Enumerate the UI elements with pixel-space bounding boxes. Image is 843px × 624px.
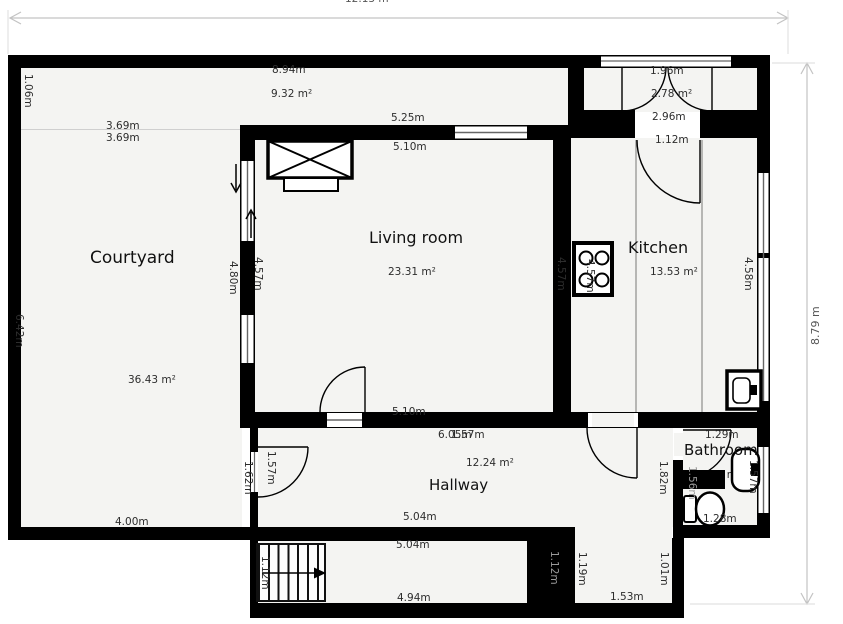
wall: [673, 460, 683, 528]
courtyard-right-dim: 4.80m: [227, 261, 238, 295]
wall: [568, 55, 584, 112]
corridor-top-dim: 5.04m: [396, 539, 430, 551]
wall: [240, 125, 570, 140]
bathroom-top-dim: 1.29m: [705, 429, 739, 441]
courtyard-top-dim-upper: 3.69m: [106, 120, 140, 132]
terrace-height-dim: 1.06m: [22, 74, 33, 108]
courtyard-hall-wall-dim: 1.62m: [242, 461, 253, 495]
kitchen-door-dim: 1.12m: [655, 134, 689, 146]
living-right-dim: 4.57m: [555, 257, 566, 291]
bathroom-right-dim: 1.57m: [747, 460, 758, 494]
wall: [250, 603, 684, 618]
hallway-door-dim: 1.57m: [265, 451, 276, 485]
floor-courtyard: [21, 129, 242, 527]
bathroom-left-dim: 1.82m: [657, 461, 668, 495]
room-name-courtyard: Courtyard: [90, 252, 175, 264]
kitchen-right-dim: 4.58m: [742, 257, 753, 291]
room-name-living: Living room: [369, 232, 463, 244]
stairs-width-dim: 1.12m: [259, 556, 270, 590]
room-name-hallway: Hallway: [429, 479, 488, 491]
living-area: 23.31 m²: [388, 266, 436, 278]
courtyard-left-dim: 6.42m: [13, 314, 24, 348]
living-top-inner-dim: 5.10m: [393, 141, 427, 153]
extension-right-dim: 1.01m: [658, 552, 669, 586]
hallway-area: 12.24 m²: [466, 457, 514, 469]
corridor-end-wall-dim: 1.12m: [548, 551, 559, 585]
living-top-dim: 5.25m: [391, 112, 425, 124]
hallway-bottom-dim: 5.04m: [403, 511, 437, 523]
bathroom-door-gap: [674, 429, 683, 460]
bathroom-bottom-dim: 1.28m: [703, 513, 737, 525]
living-left-dim: 4.57m: [252, 257, 263, 291]
wall: [673, 525, 770, 538]
wall: [240, 412, 770, 428]
room-name-bathroom: Bathroom: [684, 444, 758, 456]
terrace-width-dim: 8.94m: [272, 64, 306, 76]
entry-door-dim: 1.96m: [650, 65, 684, 77]
kitchen-left-dim: 4.57m: [584, 259, 595, 293]
wall: [8, 527, 258, 540]
terrace-area: 9.32 m²: [271, 88, 312, 100]
hallway-height-dim: 1.57m: [451, 429, 485, 441]
wall: [672, 538, 684, 616]
top-dimension-line: [8, 10, 788, 54]
living-bottom-dim: 5.10m: [392, 406, 426, 418]
entry-area: 2.78 m²: [651, 88, 692, 100]
bathroom-wall-dim: 1.56m: [686, 466, 697, 500]
room-name-kitchen: Kitchen: [628, 242, 688, 254]
overall-height-dim: 8.79 m: [810, 306, 821, 345]
overall-width-dim: 12.13 m: [345, 0, 389, 5]
courtyard-area: 36.43 m²: [128, 374, 176, 386]
floor-plan: 12.13 m 8.79 m 8.94m 9.32 m² 1.06m 3.69m…: [0, 0, 843, 624]
courtyard-bottom-dim: 4.00m: [115, 516, 149, 528]
wall: [8, 55, 21, 540]
kitchen-area: 13.53 m²: [650, 266, 698, 278]
courtyard-top-dim-lower: 3.69m: [106, 132, 140, 144]
extension-left-dim: 1.19m: [576, 552, 587, 586]
wall: [568, 110, 635, 138]
extension-bottom-dim: 1.53m: [610, 591, 644, 603]
corridor-bottom-dim: 4.94m: [397, 592, 431, 604]
entry-width-dim: 2.96m: [652, 111, 686, 123]
